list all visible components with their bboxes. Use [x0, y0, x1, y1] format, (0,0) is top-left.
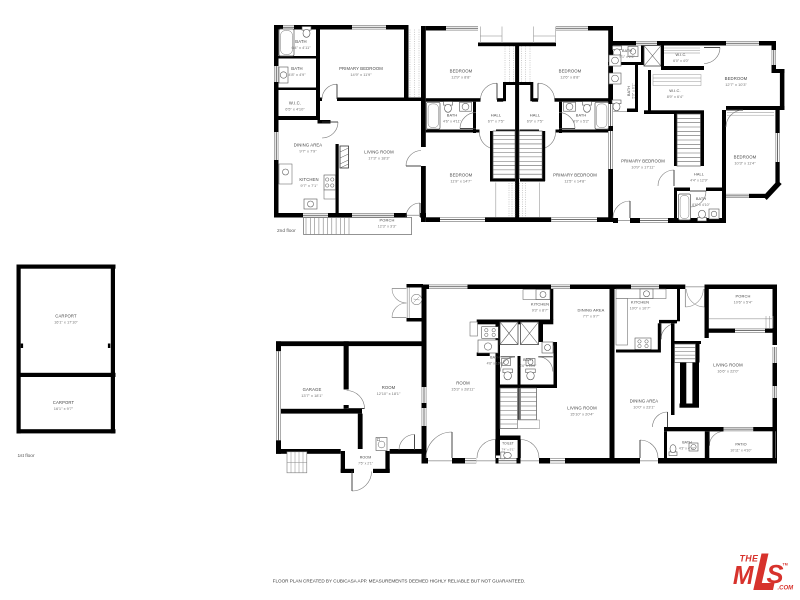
svg-text:2nd floor: 2nd floor — [277, 228, 296, 234]
svg-text:W.I.C.: W.I.C. — [289, 101, 301, 106]
svg-text:11'5" x 14'8": 11'5" x 14'8" — [564, 179, 586, 184]
svg-text:4'8" x 4'9": 4'8" x 4'9" — [288, 72, 306, 77]
svg-text:17'3" x 18'3": 17'3" x 18'3" — [368, 156, 390, 161]
svg-text:ROOM: ROOM — [360, 456, 372, 460]
svg-text:8'9" x 6'4": 8'9" x 6'4" — [667, 95, 684, 99]
svg-text:HALL: HALL — [530, 113, 541, 118]
svg-text:BATH: BATH — [291, 66, 302, 71]
svg-text:15'3" x 28'11": 15'3" x 28'11" — [451, 387, 475, 392]
svg-text:M: M — [733, 562, 755, 590]
svg-text:KITCHEN: KITCHEN — [531, 302, 549, 307]
svg-text:9'7" x 7'9": 9'7" x 7'9" — [299, 149, 317, 154]
svg-text:12'3" x 3'3": 12'3" x 3'3" — [378, 225, 397, 229]
svg-text:7'7" x 9'7": 7'7" x 9'7" — [583, 315, 600, 319]
svg-text:LIVING ROOM: LIVING ROOM — [567, 406, 597, 411]
svg-text:PRIMARY BEDROOM: PRIMARY BEDROOM — [339, 66, 383, 71]
svg-text:BATH: BATH — [523, 358, 533, 362]
svg-text:15'10" x 20'4": 15'10" x 20'4" — [570, 412, 594, 417]
svg-text:16'1" x 9'7": 16'1" x 9'7" — [54, 406, 74, 411]
svg-text:BATH: BATH — [682, 441, 692, 445]
svg-text:KITCHEN: KITCHEN — [631, 300, 649, 305]
svg-text:BATH: BATH — [576, 113, 587, 118]
svg-text:10'0" x 10'7": 10'0" x 10'7" — [630, 307, 651, 311]
svg-text:5'9" x 6'1": 5'9" x 6'1" — [632, 83, 636, 99]
svg-text:6'7" x 7'5": 6'7" x 7'5" — [488, 120, 505, 124]
svg-text:12'6" x 8'8": 12'6" x 8'8" — [560, 75, 580, 80]
svg-text:TOILET: TOILET — [502, 442, 514, 446]
svg-text:PRIMARY BEDROOM: PRIMARY BEDROOM — [621, 159, 665, 164]
svg-text:7'4" x 5'1": 7'4" x 5'1" — [501, 448, 514, 452]
svg-text:W.I.C.: W.I.C. — [676, 53, 687, 57]
svg-text:BEDROOM: BEDROOM — [559, 69, 582, 74]
svg-text:HALL: HALL — [491, 113, 502, 118]
svg-text:4'6" x 10'0": 4'6" x 10'0" — [487, 362, 505, 366]
svg-text:GARAGE: GARAGE — [303, 387, 322, 392]
svg-text:W.I.C.: W.I.C. — [669, 88, 681, 93]
svg-text:BATH: BATH — [622, 49, 632, 53]
svg-text:6'0" x 4'0": 6'0" x 4'0" — [673, 59, 689, 63]
svg-text:PRIMARY BEDROOM: PRIMARY BEDROOM — [553, 173, 597, 178]
svg-text:BEDROOM: BEDROOM — [450, 69, 473, 74]
svg-text:PORCH: PORCH — [736, 294, 751, 299]
svg-text:13'7" x 18'1": 13'7" x 18'1" — [301, 393, 323, 398]
svg-text:9'7" x 7'1": 9'7" x 7'1" — [300, 183, 318, 188]
svg-text:CARPORT: CARPORT — [53, 400, 75, 405]
svg-text:12'9" x 8'8": 12'9" x 8'8" — [451, 75, 471, 80]
svg-text:BATH: BATH — [295, 39, 306, 44]
svg-text:LIVING ROOM: LIVING ROOM — [713, 363, 743, 368]
svg-text:10'3" x 11'4": 10'3" x 11'4" — [734, 161, 756, 166]
svg-text:6'4" x 4'11": 6'4" x 4'11" — [291, 45, 311, 50]
svg-text:4'6" x 10'0": 4'6" x 10'0" — [520, 364, 538, 368]
svg-text:4'6" x 4'11": 4'6" x 4'11" — [443, 120, 462, 124]
svg-text:8'0" x 5'2": 8'0" x 5'2" — [573, 120, 590, 124]
svg-text:16'6" x 22'0": 16'6" x 22'0" — [717, 369, 739, 374]
svg-text:7'5" x 2'1": 7'5" x 2'1" — [358, 462, 374, 466]
svg-text:1st floor: 1st floor — [18, 453, 35, 459]
svg-text:ROOM: ROOM — [382, 385, 396, 390]
svg-text:PATIO: PATIO — [735, 443, 746, 447]
svg-text:12'7" x 10'3": 12'7" x 10'3" — [725, 82, 747, 87]
svg-text:LIVING ROOM: LIVING ROOM — [364, 150, 394, 155]
svg-text:10'11" x 4'10": 10'11" x 4'10" — [730, 449, 752, 453]
svg-text:10'9" x 17'11": 10'9" x 17'11" — [631, 165, 655, 170]
svg-text:4'3" x 4'10": 4'3" x 4'10" — [679, 447, 696, 451]
svg-text:9'1" x 2'6": 9'1" x 2'6" — [619, 55, 635, 59]
svg-text:BEDROOM: BEDROOM — [734, 155, 757, 160]
svg-text:HALL: HALL — [694, 173, 704, 177]
svg-text:DINING AREA: DINING AREA — [630, 399, 659, 404]
svg-text:TM: TM — [783, 563, 788, 567]
svg-text:10'0" x 23'1": 10'0" x 23'1" — [633, 405, 655, 410]
svg-text:11'9" x 14'7": 11'9" x 14'7" — [450, 179, 472, 184]
svg-text:BATH: BATH — [696, 197, 706, 201]
svg-text:16'1" x 17'10": 16'1" x 17'10" — [54, 320, 78, 325]
svg-text:PORCH: PORCH — [380, 218, 395, 223]
svg-text:BEDROOM: BEDROOM — [725, 76, 748, 81]
svg-text:ROOM: ROOM — [456, 381, 470, 386]
svg-text:6'5" x 4'10": 6'5" x 4'10" — [285, 107, 305, 112]
svg-text:6'9" x 7'5": 6'9" x 7'5" — [527, 120, 544, 124]
svg-text:.COM: .COM — [778, 586, 795, 592]
svg-text:12'10" x 18'1": 12'10" x 18'1" — [377, 391, 401, 396]
svg-text:BATH: BATH — [447, 113, 458, 118]
svg-text:9'3" x 8'7": 9'3" x 8'7" — [532, 309, 549, 313]
svg-text:8'6" x 4'10": 8'6" x 4'10" — [692, 203, 710, 207]
svg-text:BEDROOM: BEDROOM — [450, 173, 473, 178]
svg-text:14'9" x 11'9": 14'9" x 11'9" — [350, 72, 372, 77]
svg-text:DINING AREA: DINING AREA — [578, 308, 605, 313]
svg-text:CARPORT: CARPORT — [55, 314, 77, 319]
svg-text:KITCHEN: KITCHEN — [299, 177, 318, 182]
svg-text:DINING AREA: DINING AREA — [294, 143, 323, 148]
svg-text:FLOOR PLAN CREATED BY CUBICASA: FLOOR PLAN CREATED BY CUBICASA APP. MEAS… — [273, 579, 526, 584]
svg-text:BATH: BATH — [490, 356, 500, 360]
svg-text:10'6" x 5'4": 10'6" x 5'4" — [734, 301, 753, 305]
svg-text:4'4" x 12'9": 4'4" x 12'9" — [690, 179, 708, 183]
svg-text:BATH: BATH — [627, 86, 631, 96]
